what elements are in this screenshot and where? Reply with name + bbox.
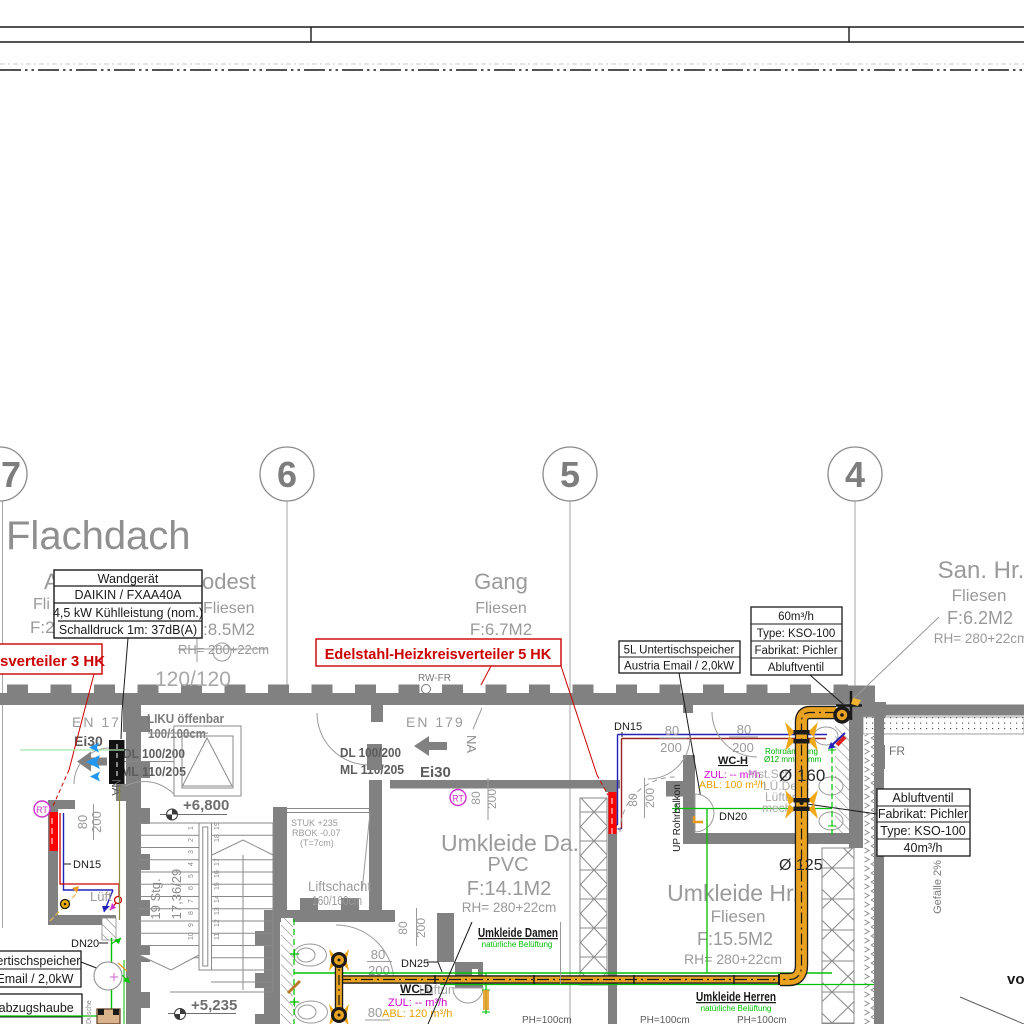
svg-text:6: 6 [277, 454, 297, 495]
svg-text::8.5M2: :8.5M2 [203, 620, 255, 639]
svg-text:odest: odest [202, 569, 256, 594]
svg-text:Gang: Gang [474, 569, 528, 594]
svg-text:F:6.7M2: F:6.7M2 [470, 620, 532, 639]
svg-text:Type: KSO-100: Type: KSO-100 [880, 824, 966, 838]
svg-text:RH= 280+22cm: RH= 280+22cm [462, 900, 557, 915]
svg-text:DN20: DN20 [719, 811, 747, 823]
svg-text:Ø 160: Ø 160 [779, 766, 825, 785]
svg-text:80: 80 [75, 815, 90, 829]
svg-text:RW-FR: RW-FR [418, 673, 451, 684]
svg-text:Umkleide Herren: Umkleide Herren [696, 990, 776, 1004]
svg-text:11: 11 [214, 933, 221, 940]
svg-text:+5,235: +5,235 [191, 997, 237, 1014]
svg-text:8: 8 [188, 911, 195, 915]
svg-text:Ø12 mm 56 mm: Ø12 mm 56 mm [764, 755, 822, 764]
svg-text:vo: vo [1007, 971, 1024, 988]
svg-text:Umkleide Da.: Umkleide Da. [441, 830, 579, 856]
svg-text:EN 179: EN 179 [406, 714, 465, 730]
svg-text:RH= 280+22cm: RH= 280+22cm [684, 951, 782, 967]
svg-text:(T=7cm): (T=7cm) [300, 838, 334, 848]
svg-text:Fliesen: Fliesen [475, 600, 527, 617]
svg-text:Lüft: Lüft [90, 889, 112, 904]
svg-text:RT: RT [452, 794, 464, 804]
svg-text:natürliche Belüftung: natürliche Belüftung [701, 1004, 772, 1013]
svg-text:2: 2 [188, 838, 195, 842]
svg-text:RT: RT [36, 805, 48, 815]
svg-text:3: 3 [188, 850, 195, 854]
svg-text:5: 5 [188, 874, 195, 878]
svg-text:NA: NA [109, 779, 123, 796]
svg-text:RH= 280+22cm: RH= 280+22cm [934, 631, 1024, 646]
svg-text:ABL: 120 m³/h: ABL: 120 m³/h [382, 1008, 452, 1020]
svg-text:40m³/h: 40m³/h [904, 841, 943, 855]
svg-text:STUK +235: STUK +235 [291, 818, 338, 828]
svg-text:80: 80 [368, 1005, 382, 1020]
svg-text:17,36/29: 17,36/29 [169, 869, 184, 920]
svg-text:7: 7 [188, 899, 195, 903]
svg-text:19: 19 [214, 822, 221, 830]
svg-text:F:14.1M2: F:14.1M2 [467, 878, 551, 900]
svg-text:5: 5 [560, 454, 580, 495]
svg-text:80: 80 [396, 921, 410, 935]
svg-text:Abluftventil: Abluftventil [892, 791, 953, 805]
svg-text:RBOK -0.07: RBOK -0.07 [292, 828, 341, 838]
svg-text:FR: FR [889, 744, 905, 758]
svg-text:F:15.5M2: F:15.5M2 [697, 929, 773, 949]
svg-text:DN20: DN20 [71, 938, 99, 950]
svg-text:DAIKIN / FXAA40A: DAIKIN / FXAA40A [75, 588, 183, 602]
svg-text:Dusche: Dusche [86, 1000, 93, 1024]
svg-text:Schalldruck 1m: 37dB(A): Schalldruck 1m: 37dB(A) [59, 623, 197, 637]
svg-text:Fabrikat: Pichler: Fabrikat: Pichler [878, 807, 968, 821]
svg-text:Liftschacht: Liftschacht [308, 878, 371, 894]
svg-text:sverteiler 3 HK: sverteiler 3 HK [0, 653, 105, 670]
svg-text:UP Rohrbalkon: UP Rohrbalkon [672, 784, 683, 852]
svg-text:natürliche Belüftung: natürliche Belüftung [482, 940, 553, 949]
svg-text:17: 17 [214, 858, 221, 866]
svg-text:PH=100cm: PH=100cm [640, 1015, 690, 1024]
svg-text:200: 200 [643, 788, 657, 808]
svg-text:San. Hr.: San. Hr. [938, 557, 1024, 584]
svg-text:5L Untertischspeicher: 5L Untertischspeicher [0, 954, 80, 968]
svg-text:Abluftventil: Abluftventil [768, 662, 824, 674]
svg-text:160/160cm: 160/160cm [312, 893, 362, 908]
svg-text:PH=100cm: PH=100cm [522, 1015, 572, 1024]
svg-text:14: 14 [214, 895, 221, 903]
svg-text:Flachdach: Flachdach [6, 514, 191, 558]
svg-text:+6,800: +6,800 [183, 797, 229, 814]
svg-text:80: 80 [371, 947, 385, 962]
svg-text:6: 6 [188, 886, 195, 890]
svg-text:NA: NA [464, 735, 479, 753]
svg-text:12: 12 [214, 919, 221, 927]
svg-text:5L Untertischspeicher: 5L Untertischspeicher [624, 645, 735, 657]
svg-text:DN25: DN25 [401, 958, 429, 970]
svg-text:7: 7 [1, 454, 21, 495]
svg-text:WC-D: WC-D [400, 982, 433, 996]
svg-text:Austria Email / 2,0kW: Austria Email / 2,0kW [0, 972, 74, 986]
svg-text:DN15: DN15 [73, 859, 101, 871]
svg-text:Austria Email / 2,0kW: Austria Email / 2,0kW [624, 661, 734, 673]
svg-text:200: 200 [660, 740, 682, 755]
svg-text:Fli: Fli [33, 596, 50, 613]
svg-text:4: 4 [188, 862, 195, 866]
svg-text:Umkleide Damen: Umkleide Damen [478, 926, 558, 940]
svg-text:80: 80 [665, 723, 679, 738]
svg-text:Gefälle 2%: Gefälle 2% [932, 860, 944, 914]
svg-text:Type: KSO-100: Type: KSO-100 [757, 628, 836, 640]
svg-text:Fabrikat: Pichler: Fabrikat: Pichler [754, 645, 837, 657]
svg-text:F:2: F:2 [30, 618, 55, 637]
svg-text:200: 200 [485, 789, 499, 809]
svg-text:200: 200 [89, 811, 104, 833]
svg-text:ML 110/205: ML 110/205 [121, 765, 186, 779]
svg-text:80: 80 [626, 793, 640, 807]
svg-text:18: 18 [214, 834, 221, 842]
svg-text:16: 16 [214, 870, 221, 878]
svg-text:15: 15 [214, 882, 221, 890]
svg-text:13: 13 [214, 907, 221, 915]
svg-text:Ø 125: Ø 125 [779, 857, 823, 874]
svg-text:10: 10 [188, 932, 195, 940]
svg-text:200: 200 [732, 740, 754, 755]
svg-text:F:6.2M2: F:6.2M2 [947, 608, 1013, 628]
svg-text:19 Stg.: 19 Stg. [148, 878, 163, 919]
svg-text:120/120: 120/120 [155, 668, 231, 691]
svg-text:Edelstahl-Heizkreisverteiler 5: Edelstahl-Heizkreisverteiler 5 HK [325, 647, 552, 663]
svg-text:DL 100/200: DL 100/200 [123, 747, 185, 761]
svg-text:9: 9 [188, 923, 195, 927]
svg-text:Umkleide Hr.: Umkleide Hr. [667, 880, 799, 906]
svg-text:1: 1 [188, 826, 195, 830]
svg-text:4: 4 [845, 454, 865, 495]
svg-text:DN15: DN15 [614, 721, 642, 733]
svg-text:Fliesen: Fliesen [952, 586, 1007, 605]
svg-text:Wandgerät: Wandgerät [98, 572, 159, 586]
svg-text:Dunstabzugshaube: Dunstabzugshaube [0, 1001, 74, 1015]
svg-text:PH=100cm: PH=100cm [737, 1015, 787, 1024]
svg-text:EN 17: EN 17 [72, 714, 121, 730]
svg-text:80: 80 [737, 722, 751, 737]
svg-text:Fliesen: Fliesen [711, 907, 766, 926]
svg-text:PVC: PVC [487, 854, 528, 876]
svg-text:WC-H: WC-H [718, 755, 748, 767]
svg-text:4,5 kW Kühlleistung (nom.): 4,5 kW Kühlleistung (nom.) [53, 606, 203, 620]
svg-text:80: 80 [469, 791, 483, 805]
svg-text:200: 200 [414, 918, 428, 938]
svg-text:Fliesen: Fliesen [203, 600, 255, 617]
svg-text:60m³/h: 60m³/h [778, 611, 814, 623]
svg-text:Ei30: Ei30 [420, 764, 451, 781]
svg-text:LIKU öffenbar: LIKU öffenbar [147, 711, 224, 726]
